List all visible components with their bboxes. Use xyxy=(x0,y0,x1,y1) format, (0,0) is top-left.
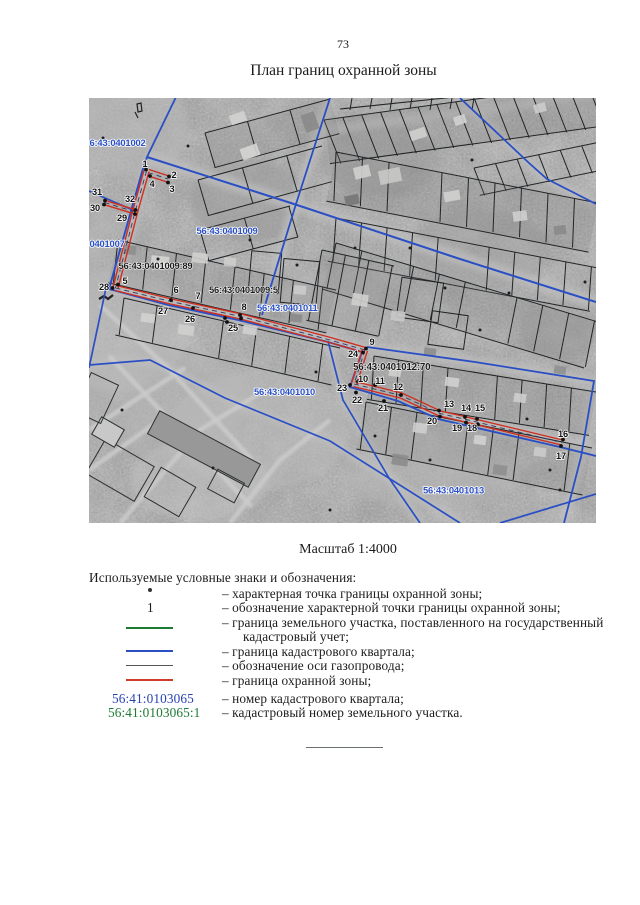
svg-text:8: 8 xyxy=(242,302,247,312)
svg-text:7: 7 xyxy=(196,291,201,301)
svg-text:22: 22 xyxy=(352,395,362,405)
svg-text:56:43:0401009:89: 56:43:0401009:89 xyxy=(119,260,193,271)
svg-text:29: 29 xyxy=(117,213,127,223)
svg-text:11: 11 xyxy=(375,376,384,386)
svg-text:26: 26 xyxy=(185,314,195,324)
svg-text:23: 23 xyxy=(337,383,347,393)
svg-text:3: 3 xyxy=(170,184,175,194)
svg-text:56:43:0401013: 56:43:0401013 xyxy=(423,485,484,496)
svg-text:27: 27 xyxy=(158,306,168,316)
svg-text:16: 16 xyxy=(558,429,568,439)
svg-text:9: 9 xyxy=(370,337,375,347)
svg-text:6: 6 xyxy=(174,285,179,295)
svg-text:12: 12 xyxy=(393,382,403,392)
svg-text:6:43:0401002: 6:43:0401002 xyxy=(90,137,146,148)
svg-text:56:43:0401010: 56:43:0401010 xyxy=(254,386,315,397)
svg-text:20: 20 xyxy=(427,416,437,426)
svg-text:32: 32 xyxy=(125,194,135,204)
svg-text:21: 21 xyxy=(378,403,388,413)
svg-text:10: 10 xyxy=(358,374,368,384)
svg-text:25: 25 xyxy=(228,323,238,333)
svg-text:2: 2 xyxy=(172,170,177,180)
svg-text:31: 31 xyxy=(92,187,102,197)
svg-text:0401007: 0401007 xyxy=(90,238,125,249)
svg-text:14: 14 xyxy=(461,403,472,413)
svg-text:19: 19 xyxy=(452,423,462,433)
svg-text:5: 5 xyxy=(123,276,128,286)
svg-text:1: 1 xyxy=(143,159,148,169)
svg-text:18: 18 xyxy=(467,423,477,433)
svg-text:13: 13 xyxy=(444,399,454,409)
svg-text:56:43:0401011: 56:43:0401011 xyxy=(257,302,317,313)
svg-text:15: 15 xyxy=(475,403,485,413)
svg-text:28: 28 xyxy=(99,282,109,292)
svg-text:24: 24 xyxy=(348,349,359,359)
svg-text:30: 30 xyxy=(90,203,100,213)
svg-text:17: 17 xyxy=(556,451,566,461)
svg-text:56:43:0401009: 56:43:0401009 xyxy=(197,225,258,236)
svg-text:56:43:0401012:70: 56:43:0401012:70 xyxy=(353,362,431,373)
svg-text:56:43:0401009:5: 56:43:0401009:5 xyxy=(209,284,278,295)
